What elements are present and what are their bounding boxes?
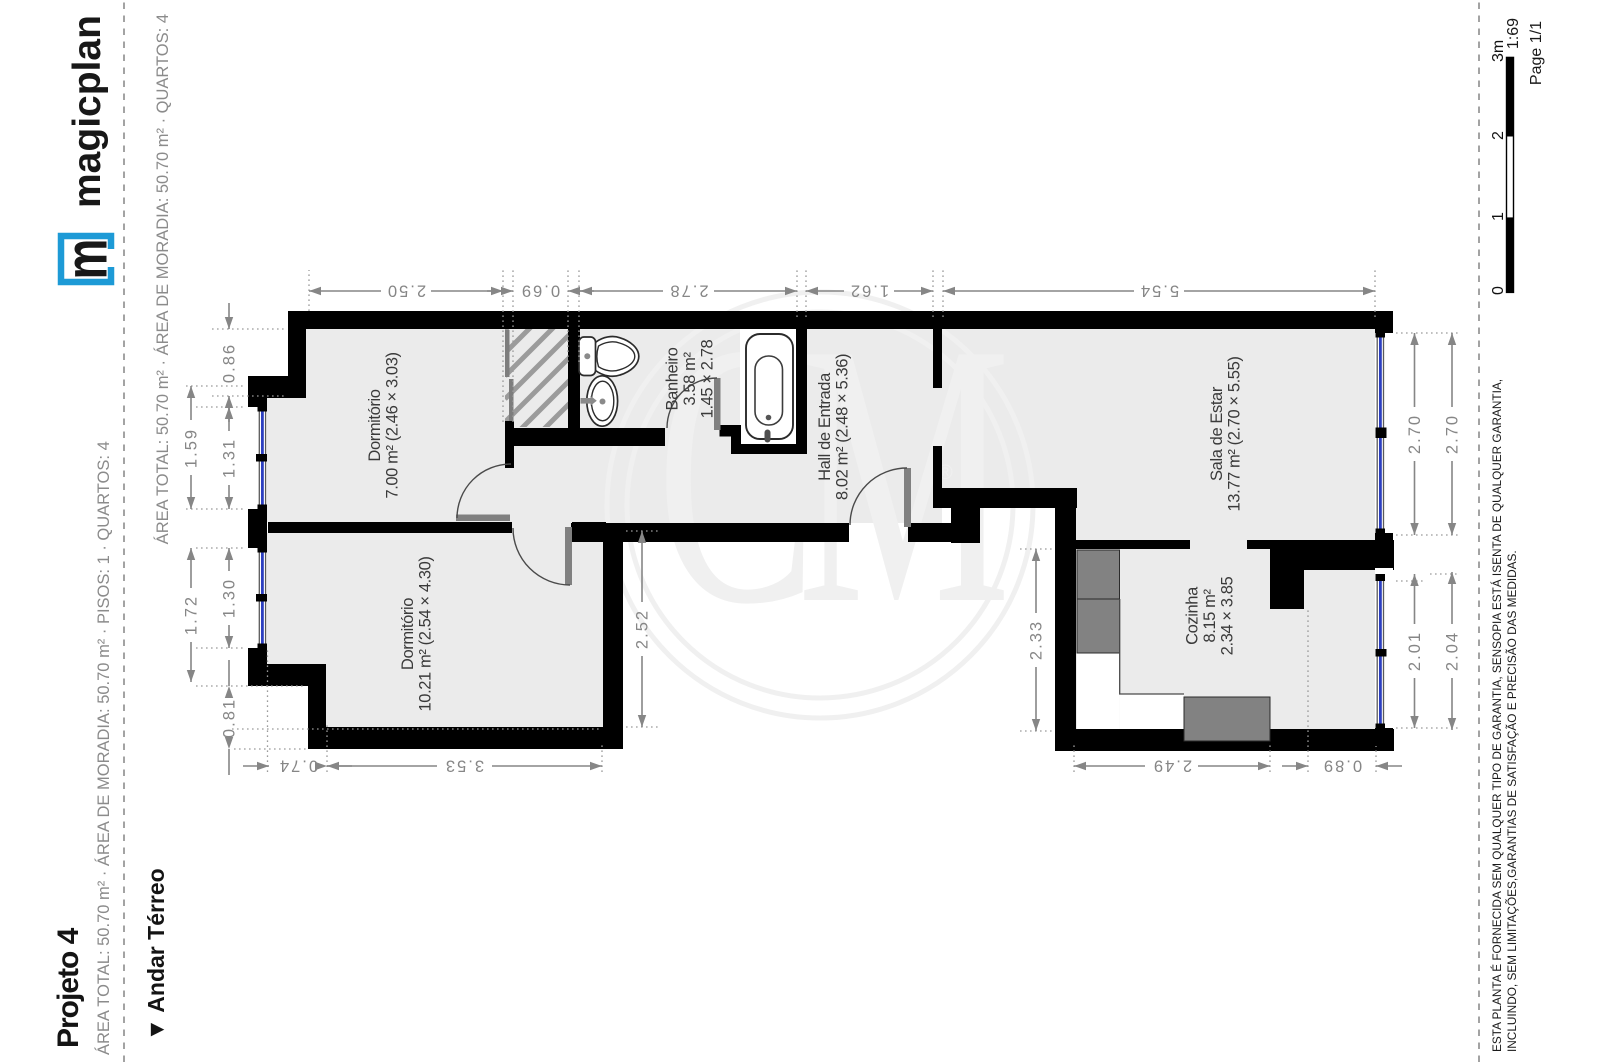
svg-text:0.81: 0.81 (221, 698, 239, 738)
svg-text:Banheiro: Banheiro (664, 347, 682, 410)
svg-text:0.89: 0.89 (1322, 757, 1362, 775)
svg-text:0.86: 0.86 (221, 343, 239, 383)
svg-text:2.01: 2.01 (1406, 631, 1424, 671)
svg-text:Dormitório: Dormitório (399, 598, 417, 670)
svg-text:2.04: 2.04 (1444, 631, 1462, 671)
svg-text:2.49: 2.49 (1152, 757, 1192, 775)
svg-text:2: 2 (1490, 131, 1507, 140)
svg-text:1.45 × 2.78: 1.45 × 2.78 (699, 339, 717, 418)
svg-text:7.00 m² (2.46 × 3.03): 7.00 m² (2.46 × 3.03) (384, 352, 402, 498)
svg-text:2.34 × 3.85: 2.34 × 3.85 (1219, 576, 1237, 655)
svg-text:5.54: 5.54 (1139, 282, 1179, 300)
svg-text:2.78: 2.78 (668, 282, 708, 300)
svg-text:2.52: 2.52 (634, 609, 652, 649)
svg-text:0.74: 0.74 (278, 757, 318, 775)
svg-text:8.02 m² (2.48 × 5.36): 8.02 m² (2.48 × 5.36) (834, 354, 852, 500)
svg-text:1.31: 1.31 (221, 438, 239, 478)
svg-text:10.21 m² (2.54 × 4.30): 10.21 m² (2.54 × 4.30) (417, 557, 435, 712)
svg-text:1: 1 (1490, 212, 1507, 221)
svg-text:2.70: 2.70 (1444, 414, 1462, 454)
svg-text:13.77 m² (2.70 × 5.55): 13.77 m² (2.70 × 5.55) (1226, 357, 1244, 512)
svg-text:1.59: 1.59 (183, 428, 201, 468)
svg-text:Hall de Entrada: Hall de Entrada (816, 372, 834, 481)
svg-text:2.50: 2.50 (386, 282, 426, 300)
svg-text:Dormitório: Dormitório (366, 389, 384, 461)
svg-text:1.72: 1.72 (183, 595, 201, 635)
svg-text:Cozinha: Cozinha (1184, 586, 1202, 645)
svg-text:0: 0 (1490, 286, 1507, 295)
svg-text:2.33: 2.33 (1028, 620, 1046, 660)
svg-text:1.30: 1.30 (221, 578, 239, 618)
svg-text:2.70: 2.70 (1406, 414, 1424, 454)
svg-text:0.69: 0.69 (520, 282, 560, 300)
svg-text:3.58 m²: 3.58 m² (681, 352, 699, 406)
svg-text:3.53: 3.53 (444, 757, 484, 775)
svg-text:1.62: 1.62 (849, 282, 889, 300)
svg-text:Sala de Estar: Sala de Estar (1208, 386, 1226, 481)
svg-text:8.15 m²: 8.15 m² (1201, 589, 1219, 643)
